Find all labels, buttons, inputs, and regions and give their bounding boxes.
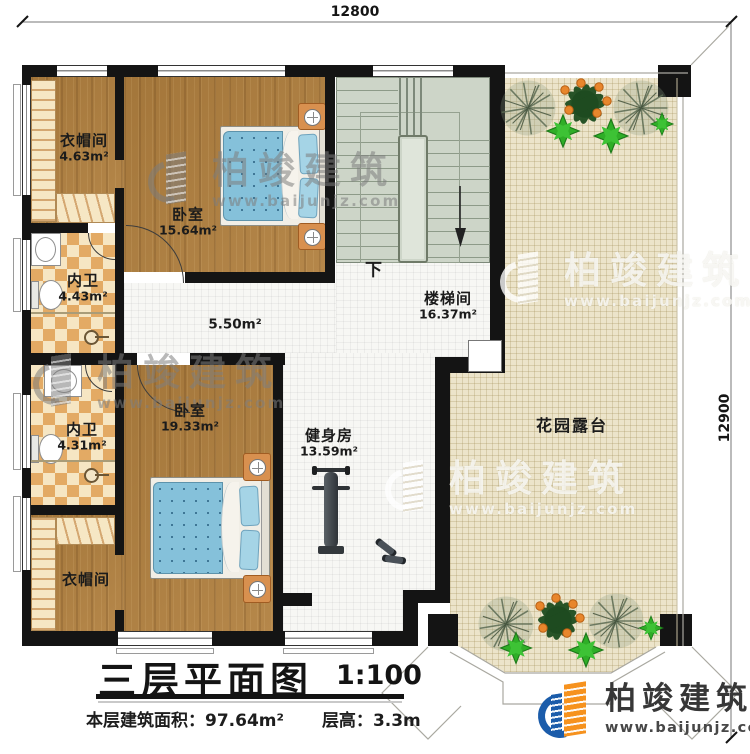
room-label-bath-upper: 内卫 4.43m² [58, 273, 107, 304]
room-label-gym: 健身房 13.59m² [300, 428, 358, 459]
title-underline [96, 694, 404, 699]
dimension-right: 12900 [717, 388, 733, 448]
plan-overlay [0, 0, 750, 754]
brand-website: www.baijunjz.com [605, 720, 750, 736]
room-label-cloakroom-lower: 衣帽间 [62, 572, 110, 589]
room-label-terrace: 花园露台 [536, 417, 608, 435]
floor-height-info: 层高：3.3m [322, 706, 421, 731]
brand-logo: 柏竣建筑 www.baijunjz.com [538, 682, 750, 744]
dimension-top: 12800 [320, 4, 390, 20]
floor-plan-canvas: 柏竣建筑 www.baijunjz.com 柏竣建筑 www.baijunjz.… [0, 0, 750, 754]
brand-logo-icon [538, 682, 596, 744]
room-label-cloakroom-upper: 衣帽间 4.63m² [59, 133, 108, 164]
stair-arrow-icon [455, 186, 466, 247]
room-label-stairwell: 楼梯间 16.37m² [419, 291, 477, 322]
title-underline-thin [98, 701, 402, 703]
brand-company: 柏竣建筑 [605, 682, 750, 718]
hallway-area-label: 5.50m² [208, 317, 261, 332]
plan-scale: 1:100 [336, 660, 422, 691]
room-label-bedroom-lower: 卧室 19.33m² [161, 403, 219, 434]
room-label-bath-lower: 内卫 4.31m² [57, 422, 106, 453]
floor-area-info: 本层建筑面积：97.64m² [86, 706, 284, 731]
plant-cluster-top [501, 79, 675, 155]
room-label-bedroom-upper: 卧室 15.64m² [159, 207, 217, 238]
title-info-row: 本层建筑面积：97.64m² 层高：3.3m [86, 706, 421, 731]
stair-down-label: 下 [365, 261, 383, 280]
